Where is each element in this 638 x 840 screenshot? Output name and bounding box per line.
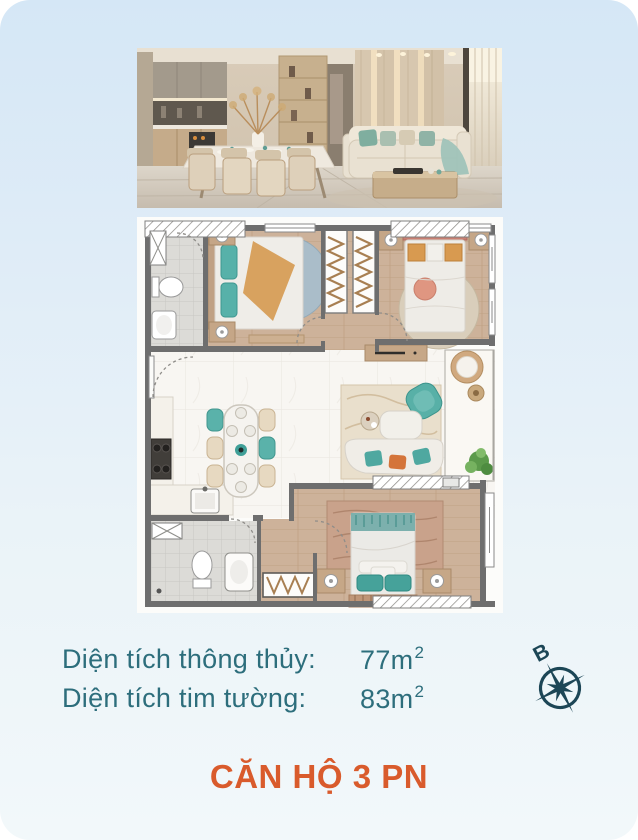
dining-set: [207, 405, 275, 497]
vase: [252, 132, 264, 147]
spec-label: Diện tích tim tường:: [62, 683, 360, 714]
toilet: [159, 277, 183, 297]
hall-wardrobe: [263, 573, 315, 597]
apartment-card-page: Diện tích thông thủy: 77m2 Diện tích tim…: [0, 0, 638, 840]
spec-value-sup: 2: [414, 682, 424, 701]
compass-icon: B: [516, 636, 604, 728]
floor-plan: [137, 217, 503, 613]
toilet: [192, 551, 212, 579]
bench: [249, 335, 304, 343]
chaise: [380, 411, 422, 439]
compass-north-label: B: [529, 639, 553, 666]
spec-row-clear-area: Diện tích thông thủy: 77m2: [62, 644, 532, 683]
spec-value: 77m2: [360, 644, 423, 676]
area-specs: Diện tích thông thủy: 77m2 Diện tích tim…: [62, 644, 532, 722]
spec-value-sup: 2: [414, 643, 424, 662]
tv-console: [365, 345, 427, 361]
spec-value: 83m2: [360, 683, 423, 715]
spec-label: Diện tích thông thủy:: [62, 644, 360, 675]
hero-photo: [137, 48, 502, 208]
spec-value-number: 83m: [360, 684, 413, 714]
spec-row-wall-area: Diện tích tim tường: 83m2: [62, 683, 532, 722]
coffee-table: [373, 168, 457, 198]
spec-value-number: 77m: [360, 645, 413, 675]
entrance-door-leaf: [149, 356, 154, 398]
bedroom-3: [317, 501, 451, 607]
round-cushion: [414, 278, 436, 300]
teal-pillow: [358, 129, 378, 147]
page-title: CĂN HỘ 3 PN: [0, 758, 638, 796]
side-table: [361, 412, 379, 430]
